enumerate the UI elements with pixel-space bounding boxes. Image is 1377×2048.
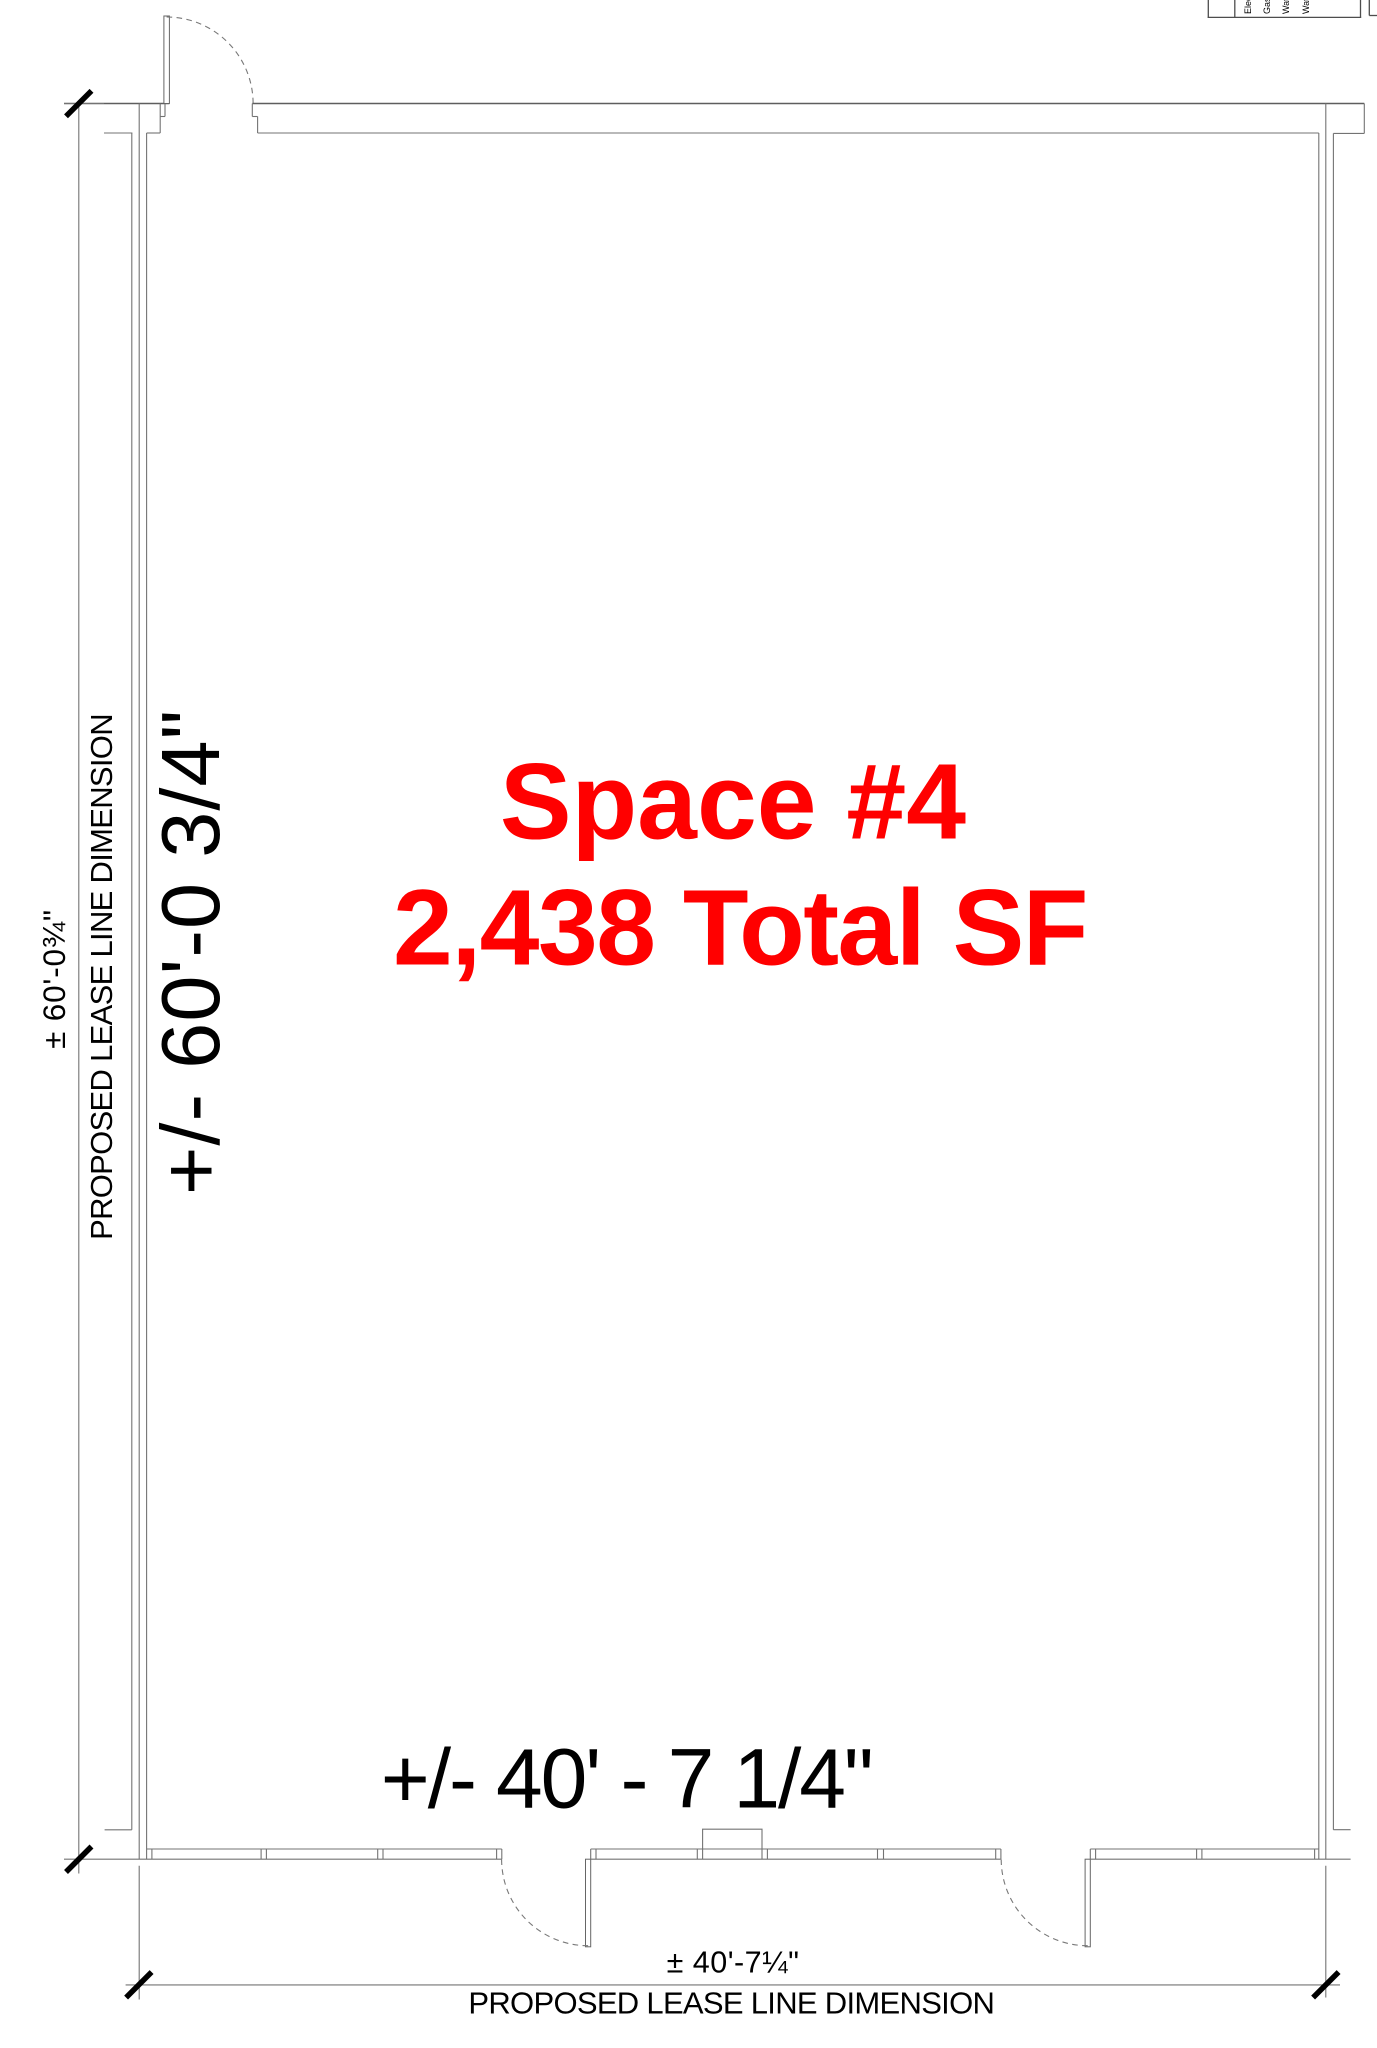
svg-text:2,438 Total SF: 2,438 Total SF (393, 867, 1087, 987)
svg-text:+/- 60'-0 3/4": +/- 60'-0 3/4" (144, 709, 237, 1195)
svg-text:± 40'-7¼": ± 40'-7¼" (667, 1946, 800, 1980)
svg-text:PROPOSED LEASE LINE DIMENSION: PROPOSED LEASE LINE DIMENSION (84, 714, 119, 1240)
svg-text:Electric: Electric (1243, 0, 1253, 14)
svg-text:PROPOSED LEASE LINE DIMENSION: PROPOSED LEASE LINE DIMENSION (468, 1986, 994, 2021)
svg-text:Water: Water (1281, 0, 1291, 14)
svg-text:+/- 40' - 7 1/4": +/- 40' - 7 1/4" (381, 1731, 872, 1825)
svg-text:Water: Water (1301, 0, 1311, 14)
svg-text:Gas: Gas (1262, 0, 1272, 14)
svg-text:± 60'-0¾": ± 60'-0¾" (36, 909, 72, 1049)
svg-text:Space #4: Space #4 (500, 742, 966, 862)
